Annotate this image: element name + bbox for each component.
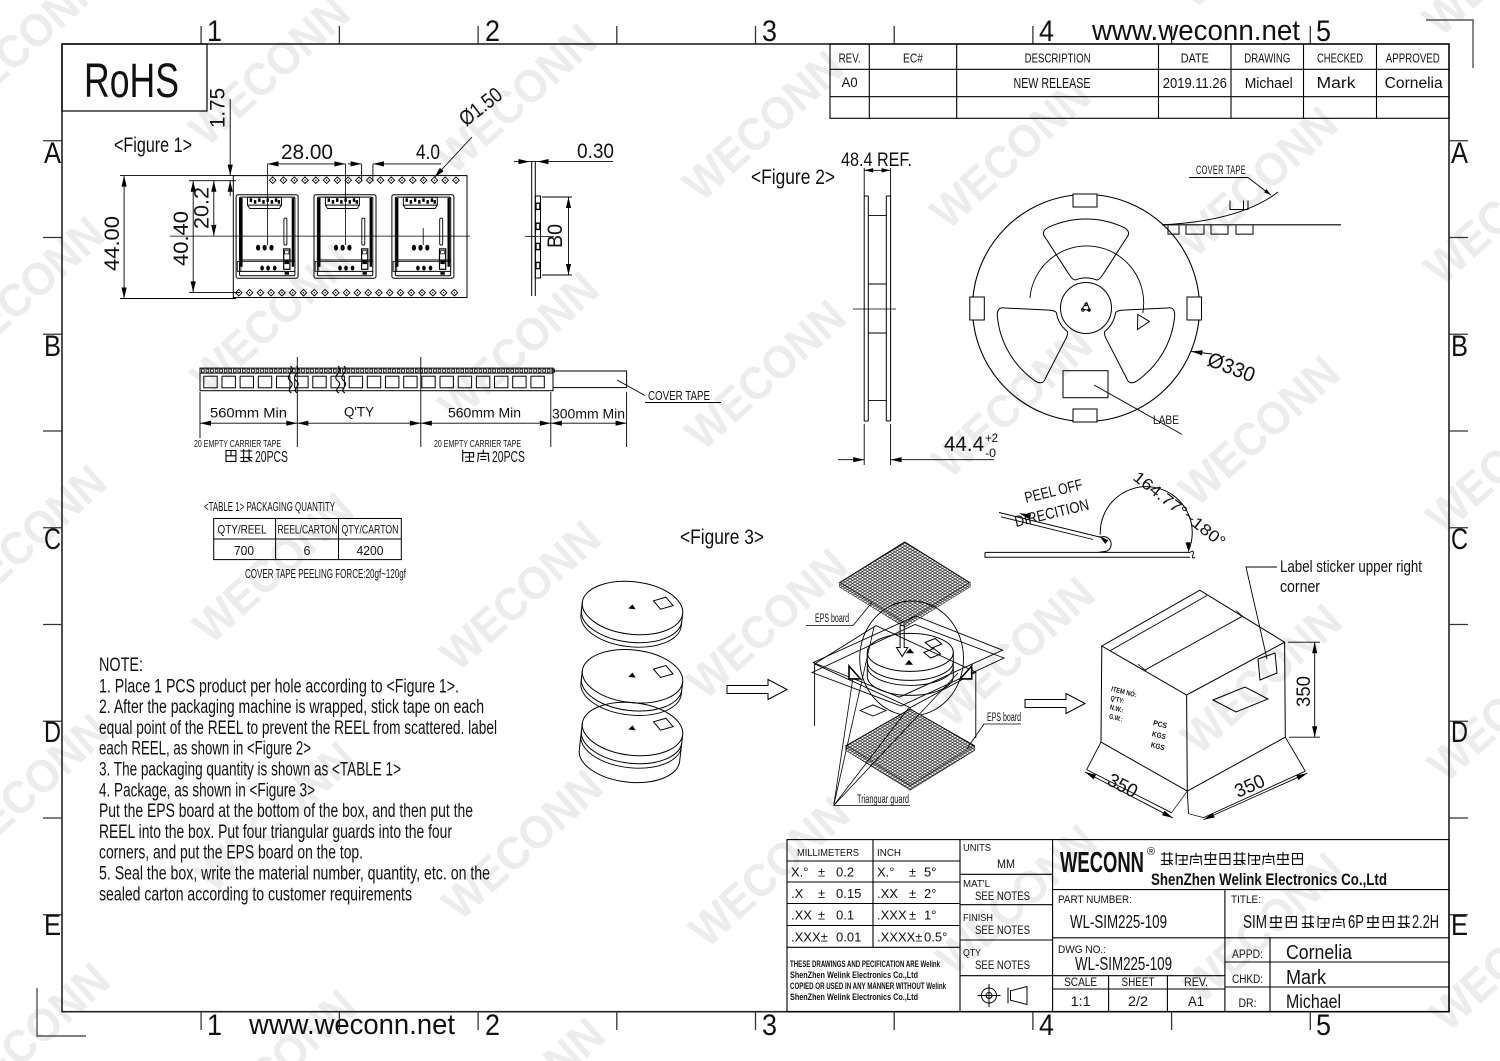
svg-text:1°: 1°: [924, 908, 936, 923]
svg-text:20.2: 20.2: [191, 187, 214, 229]
svg-text:20PCS: 20PCS: [492, 449, 525, 466]
svg-text:Q'TY: Q'TY: [344, 405, 374, 420]
svg-text:1: 1: [207, 15, 222, 48]
svg-text:2/2: 2/2: [1128, 993, 1148, 1009]
svg-text:Ø330: Ø330: [1204, 348, 1258, 387]
svg-text:EC#: EC#: [903, 52, 923, 66]
svg-text:corners, and put the EPS board: corners, and put the EPS board on the to…: [99, 843, 363, 864]
svg-text:Mark: Mark: [1286, 967, 1327, 989]
svg-text:<Figure 3>: <Figure 3>: [680, 526, 764, 549]
svg-text:DR:: DR:: [1239, 998, 1257, 1010]
svg-text:6P: 6P: [1348, 912, 1364, 932]
svg-text:Label sticker upper right: Label sticker upper right: [1280, 557, 1422, 576]
svg-text:WECONN: WECONN: [1418, 622, 1500, 792]
svg-text:EPS board: EPS board: [987, 712, 1021, 724]
svg-text:A: A: [44, 137, 61, 170]
svg-text:NEW RELEASE: NEW RELEASE: [1014, 75, 1091, 92]
svg-text:KGS: KGS: [1150, 740, 1166, 752]
svg-text:TITLE:: TITLE:: [1231, 894, 1261, 906]
svg-text:SIM: SIM: [1243, 912, 1267, 932]
svg-text:REEL into the box. Put four tr: REEL into the box. Put four triangular g…: [99, 822, 452, 843]
svg-text:4200: 4200: [357, 544, 384, 558]
svg-text:X.°: X.°: [791, 865, 808, 880]
svg-text:C: C: [1451, 523, 1468, 556]
svg-text:INCH: INCH: [877, 847, 901, 859]
svg-text:0.5°: 0.5°: [924, 930, 947, 945]
svg-text:WECONN: WECONN: [1060, 847, 1144, 879]
svg-text:WECONN: WECONN: [679, 787, 859, 957]
svg-text:±: ±: [909, 908, 916, 923]
svg-text:corner: corner: [1280, 577, 1320, 596]
svg-text:5: 5: [1316, 15, 1331, 48]
svg-text:.XX: .XX: [877, 886, 898, 901]
svg-text:WECONN: WECONN: [1413, 0, 1500, 45]
svg-text:A1: A1: [1188, 993, 1204, 1009]
svg-text:560mm Min: 560mm Min: [448, 406, 521, 421]
svg-text:Mark: Mark: [1317, 75, 1356, 92]
svg-text:<Figure 2>: <Figure 2>: [751, 166, 835, 189]
svg-text:A: A: [1451, 137, 1468, 170]
svg-text:REV.: REV.: [839, 52, 861, 66]
svg-text:COVER TAPE: COVER TAPE: [648, 388, 710, 403]
svg-text:www.weconn.net: www.weconn.net: [1091, 15, 1300, 47]
svg-text:WECONN: WECONN: [1167, 97, 1347, 267]
svg-text:±: ±: [818, 908, 825, 923]
svg-text:LABE: LABE: [1153, 413, 1179, 427]
svg-text:4. Package, as shown in <Figur: 4. Package, as shown in <Figure 3>: [99, 780, 315, 801]
svg-text:20PCS: 20PCS: [255, 449, 288, 466]
svg-text:QTY/CARTON: QTY/CARTON: [342, 523, 399, 537]
svg-text:4: 4: [1039, 1009, 1054, 1042]
svg-text:WECONN: WECONN: [1171, 594, 1351, 764]
svg-text:WECONN: WECONN: [430, 511, 610, 681]
svg-text:560mm Min: 560mm Min: [210, 406, 287, 421]
svg-text:2°: 2°: [924, 886, 936, 901]
svg-text:DATE: DATE: [1181, 52, 1209, 66]
svg-text:A0: A0: [842, 74, 858, 90]
svg-text:WECONN: WECONN: [432, 760, 612, 930]
svg-text:E: E: [44, 909, 61, 942]
svg-text:6: 6: [304, 544, 311, 558]
svg-text:<TABLE 1> PACKAGING QUANTITY: <TABLE 1> PACKAGING QUANTITY: [204, 500, 335, 514]
svg-text:.XXX±: .XXX±: [791, 930, 828, 945]
svg-text:D: D: [1451, 716, 1468, 749]
svg-text:44.00: 44.00: [101, 216, 124, 271]
svg-text:SCALE: SCALE: [1064, 975, 1097, 989]
svg-text:350: 350: [1294, 676, 1315, 707]
svg-text:5. Seal the box, write the mat: 5. Seal the box, write the material numb…: [99, 864, 490, 885]
svg-text:2019.11.26: 2019.11.26: [1163, 75, 1227, 92]
svg-text:WECONN: WECONN: [179, 0, 359, 155]
svg-text:1.75: 1.75: [207, 88, 230, 128]
svg-text:G.W.:: G.W.:: [1108, 713, 1123, 723]
svg-text:NOTE:: NOTE:: [99, 655, 143, 676]
svg-text:WL-SIM225-109: WL-SIM225-109: [1070, 912, 1167, 932]
svg-text:ShenZhen Welink Electronics Co: ShenZhen Welink Electronics Co.,Ltd: [790, 992, 918, 1002]
svg-text:4: 4: [1039, 15, 1054, 48]
svg-text:EPS board: EPS board: [815, 613, 849, 625]
svg-text:WECONN: WECONN: [922, 318, 1102, 488]
svg-text:MILLIMETERS: MILLIMETERS: [797, 847, 859, 859]
svg-text:SHEET: SHEET: [1122, 975, 1156, 989]
svg-text:700: 700: [234, 544, 254, 558]
svg-text:PART NUMBER:: PART NUMBER:: [1058, 894, 1132, 906]
svg-text:ShenZhen Welink Electronics Co: ShenZhen Welink Electronics Co.,Ltd: [790, 970, 918, 980]
svg-text:DESCRIPTION: DESCRIPTION: [1025, 52, 1091, 66]
svg-text:CHKD:: CHKD:: [1232, 974, 1263, 986]
svg-text:WECONN: WECONN: [920, 69, 1100, 239]
svg-text:5: 5: [1316, 1009, 1331, 1042]
svg-text:2.2H: 2.2H: [1412, 912, 1439, 932]
svg-text:350: 350: [1231, 771, 1268, 803]
svg-text:2: 2: [485, 1009, 500, 1042]
svg-text:E: E: [1451, 909, 1468, 942]
svg-text:±: ±: [818, 865, 825, 880]
svg-text:B: B: [44, 330, 61, 363]
svg-text:SEE NOTES: SEE NOTES: [975, 923, 1030, 937]
svg-text:.XXXX±: .XXXX±: [877, 930, 922, 945]
svg-text:WECONN: WECONN: [181, 234, 361, 404]
svg-text:0.15: 0.15: [836, 886, 861, 901]
svg-text:sealed carton according to cus: sealed carton according to customer requ…: [99, 884, 412, 905]
svg-text:2. After the packaging machine: 2. After the packaging machine is wrappe…: [99, 697, 484, 718]
svg-text:WECONN: WECONN: [1169, 346, 1349, 516]
svg-text:-0: -0: [985, 446, 996, 460]
svg-text:equal point of the REEL to pre: equal point of the REEL to prevent the R…: [99, 718, 497, 739]
svg-text:WL-SIM225-109: WL-SIM225-109: [1075, 954, 1172, 974]
svg-text:48.4 REF.: 48.4 REF.: [841, 150, 912, 171]
svg-text:KGS: KGS: [1151, 729, 1167, 741]
svg-text:UNITS: UNITS: [963, 842, 991, 854]
svg-text:1:1: 1:1: [1071, 993, 1091, 1009]
svg-text:0.1: 0.1: [836, 908, 854, 923]
svg-text:1: 1: [207, 1009, 222, 1042]
svg-text:WECONN: WECONN: [1416, 374, 1500, 544]
svg-text:3. The packaging quantity is s: 3. The packaging quantity is shown as <T…: [99, 760, 401, 781]
svg-text:APPROVED: APPROVED: [1386, 52, 1440, 66]
svg-text:44.4: 44.4: [944, 433, 984, 456]
svg-text:www.weconn.net: www.weconn.net: [248, 1009, 455, 1041]
svg-text:RoHS: RoHS: [84, 55, 179, 108]
svg-text:0.30: 0.30: [577, 140, 614, 163]
svg-text:COVER TAPE PEELING FORCE:20gf~: COVER TAPE PEELING FORCE:20gf~120gf: [245, 567, 406, 581]
svg-text:0.2: 0.2: [836, 865, 854, 880]
svg-text:+2: +2: [985, 431, 998, 445]
svg-text:SEE NOTES: SEE NOTES: [975, 958, 1030, 972]
svg-text:WECONN: WECONN: [675, 290, 855, 460]
svg-text:PCS: PCS: [1152, 718, 1168, 730]
svg-text:4.0: 4.0: [416, 141, 440, 164]
svg-text:X.°: X.°: [877, 865, 894, 880]
svg-text:0.01: 0.01: [836, 930, 861, 945]
svg-text:B0: B0: [544, 224, 567, 248]
svg-text:.XXX: .XXX: [877, 908, 907, 923]
svg-text:®: ®: [1147, 846, 1155, 858]
svg-text:3: 3: [762, 15, 777, 48]
svg-text:Put the EPS board at the botto: Put the EPS board at the bottom of the b…: [99, 801, 473, 822]
svg-text:APPD:: APPD:: [1232, 949, 1263, 961]
svg-text:Cornelia: Cornelia: [1286, 942, 1353, 964]
svg-text:D: D: [44, 716, 61, 749]
svg-text:each REEL, as shown in <Figure: each REEL, as shown in <Figure 2>: [99, 739, 311, 760]
svg-text:±: ±: [818, 886, 825, 901]
svg-text:B: B: [1451, 330, 1468, 363]
svg-text:.X: .X: [791, 886, 804, 901]
svg-text:<Figure 1>: <Figure 1>: [114, 134, 192, 157]
svg-text:C: C: [44, 523, 61, 556]
svg-text:±: ±: [909, 865, 916, 880]
svg-text:MM: MM: [997, 857, 1015, 871]
svg-text:Cornelia: Cornelia: [1385, 75, 1443, 92]
svg-text:COPIED OR USED IN ANY MANNER W: COPIED OR USED IN ANY MANNER WITHOUT Wel…: [790, 981, 947, 991]
svg-text:COVER TAPE: COVER TAPE: [1196, 165, 1246, 177]
svg-text:REV.: REV.: [1184, 975, 1208, 989]
svg-text:2: 2: [485, 15, 500, 48]
svg-text:WECONN: WECONN: [0, 953, 119, 1061]
svg-text:28.00: 28.00: [281, 141, 333, 164]
svg-text:DRAWING: DRAWING: [1244, 52, 1290, 66]
svg-text:SEE NOTES: SEE NOTES: [975, 889, 1030, 903]
svg-text:ShenZhen Welink Electronics Co: ShenZhen Welink Electronics Co.,Ltd: [1151, 871, 1387, 889]
svg-text:±: ±: [909, 886, 916, 901]
svg-text:3: 3: [762, 1009, 777, 1042]
svg-text:Michael: Michael: [1286, 992, 1341, 1013]
svg-text:1. Place 1 PCS product per hol: 1. Place 1 PCS product per hole accordin…: [99, 676, 459, 697]
svg-text:300mm Min: 300mm Min: [552, 407, 625, 422]
svg-text:.XX: .XX: [791, 908, 812, 923]
svg-text:REEL/CARTON: REEL/CARTON: [278, 523, 338, 537]
svg-text:WECONN: WECONN: [1420, 871, 1500, 1041]
svg-text:Trianguar guard: Trianguar guard: [857, 794, 909, 806]
svg-text:CHECKED: CHECKED: [1317, 52, 1363, 66]
svg-text:WECONN: WECONN: [434, 1008, 614, 1061]
svg-text:QTY/REEL: QTY/REEL: [218, 523, 267, 537]
svg-text:THESE DRAWINGS AND PECIFICATIO: THESE DRAWINGS AND PECIFICATION ARE Weli…: [790, 959, 941, 969]
svg-text:5°: 5°: [924, 865, 936, 880]
svg-text:Michael: Michael: [1245, 75, 1293, 92]
